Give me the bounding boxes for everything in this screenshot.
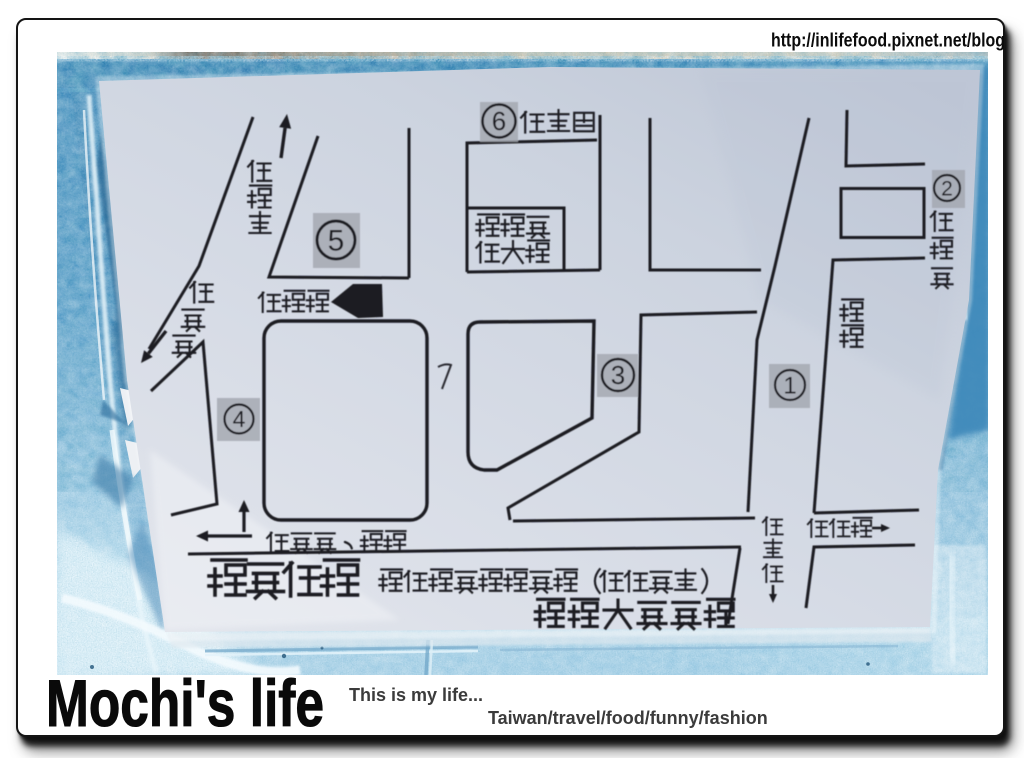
svg-text:http://inlifefood.pixnet.net/b: http://inlifefood.pixnet.net/blog	[771, 31, 1005, 52]
svg-text:3: 3	[611, 360, 625, 390]
svg-text:1: 1	[783, 372, 796, 399]
svg-text:2: 2	[941, 177, 953, 200]
svg-text:6: 6	[492, 106, 506, 136]
svg-text:5: 5	[328, 225, 345, 258]
svg-text:Mochi's life: Mochi's life	[46, 668, 324, 732]
svg-text:4: 4	[233, 406, 246, 432]
